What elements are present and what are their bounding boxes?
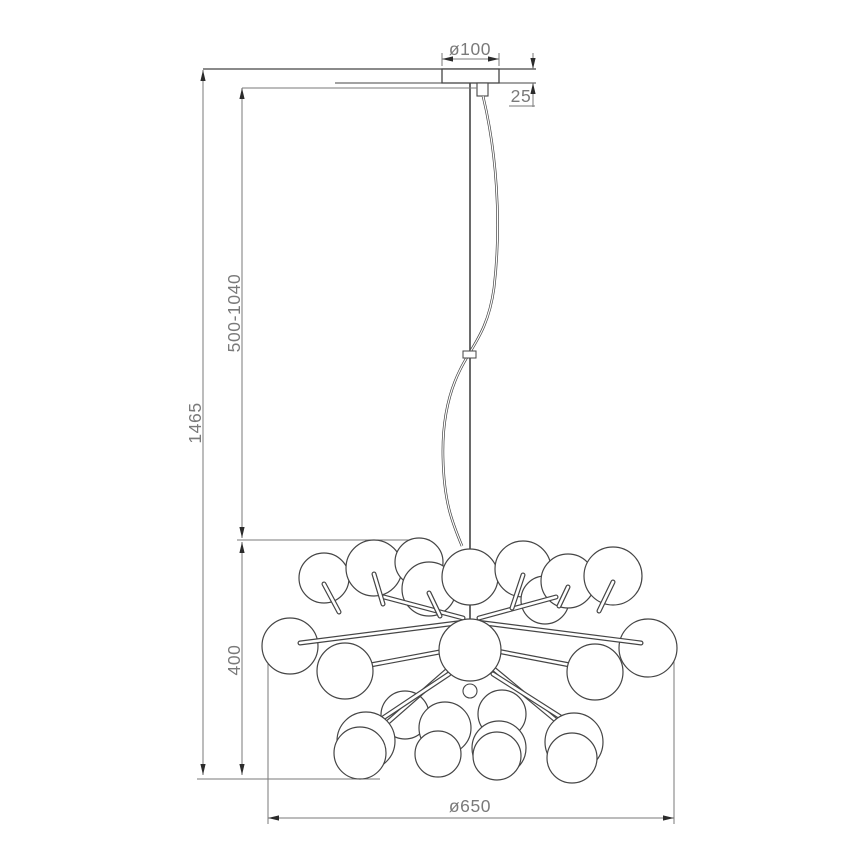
dimension-arrow xyxy=(200,70,205,81)
dimension-arrow xyxy=(239,764,244,775)
cable-clip xyxy=(463,351,476,358)
glass-sphere xyxy=(473,732,521,780)
glass-sphere xyxy=(619,619,677,677)
dimension-arrow xyxy=(239,88,244,99)
dimension-arrow xyxy=(239,527,244,538)
glass-sphere xyxy=(299,553,349,603)
dim-suspension-range-label: 500-1040 xyxy=(224,274,244,353)
dimension-arrow xyxy=(239,542,244,553)
dim-canopy-height-label: 25 xyxy=(511,86,532,106)
dim-total-height-label: 1465 xyxy=(185,402,205,443)
glass-spheres-front xyxy=(317,619,623,783)
rod-fill xyxy=(476,622,641,643)
dimension-arrow xyxy=(200,764,205,775)
dimension-arrow xyxy=(530,58,535,69)
glass-sphere xyxy=(415,731,461,777)
glass-sphere xyxy=(334,727,386,779)
drawing-canvas: ø100 25 1465 500-1040 400 ø650 xyxy=(0,0,868,868)
cable-grip xyxy=(477,83,488,96)
finial-ball xyxy=(463,684,477,698)
glass-sphere xyxy=(346,540,402,596)
glass-sphere xyxy=(442,549,498,605)
glass-sphere xyxy=(584,547,642,605)
glass-sphere xyxy=(439,619,501,681)
ceiling-canopy xyxy=(442,69,499,83)
glass-sphere xyxy=(547,733,597,783)
dim-body-height-label: 400 xyxy=(224,645,244,676)
glass-sphere xyxy=(567,644,623,700)
dim-body-diameter-label: ø650 xyxy=(449,796,491,816)
technical-drawing: ø100 25 1465 500-1040 400 ø650 xyxy=(0,0,868,868)
dimension-labels: ø100 25 1465 500-1040 400 ø650 xyxy=(185,39,531,816)
dimension-arrow xyxy=(268,815,279,820)
glass-sphere xyxy=(317,643,373,699)
dimension-arrow xyxy=(663,815,674,820)
glass-sphere xyxy=(262,618,318,674)
dim-canopy-diameter-label: ø100 xyxy=(449,39,491,59)
